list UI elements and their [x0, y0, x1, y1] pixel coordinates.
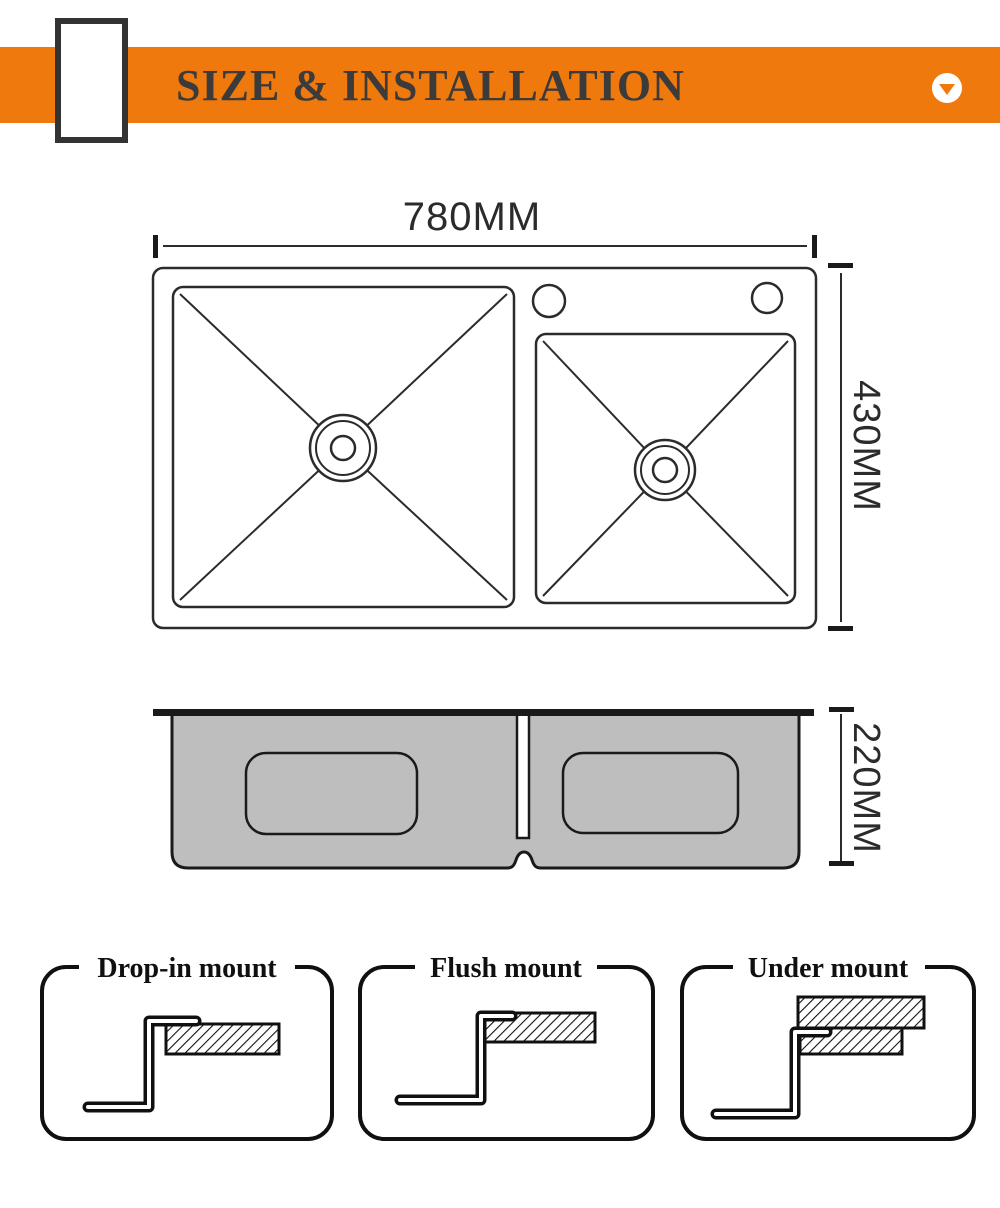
- chevron-down-icon: [939, 84, 955, 95]
- size-installation-diagram: 780MM 430MM: [0, 0, 1000, 1208]
- mount-option-drop-in: Drop-in mount: [42, 953, 332, 1139]
- flush-panel-border: [360, 967, 653, 1139]
- width-dimension: 780MM: [153, 195, 817, 258]
- right-drain-hole: [653, 458, 677, 482]
- flush-mount-label: Flush mount: [430, 953, 582, 984]
- sink-top-view: 780MM 430MM: [153, 195, 887, 631]
- right-bowl: [536, 334, 795, 603]
- depth-dimension: 220MM: [829, 707, 887, 866]
- depth-dimension-tick-bottom: [829, 861, 854, 866]
- product-size-installation-page: SIZE & INSTALLATION 780MM 430MM: [0, 0, 1000, 1208]
- collapse-section-button[interactable]: [932, 73, 962, 103]
- height-dimension-tick-bottom: [828, 626, 853, 631]
- under-mount-label: Under mount: [748, 953, 909, 984]
- mount-option-under: Under mount: [682, 953, 974, 1139]
- width-dimension-tick-left: [153, 235, 158, 258]
- depth-dimension-tick-top: [829, 707, 854, 712]
- section-body: [172, 714, 799, 868]
- section-marker-icon: [55, 18, 128, 143]
- section-title: SIZE & INSTALLATION: [176, 47, 685, 123]
- width-dimension-label: 780MM: [403, 195, 541, 239]
- width-dimension-tick-right: [812, 235, 817, 258]
- mount-options: Drop-in mount Flush mount Under mount: [42, 953, 974, 1139]
- drop-in-mount-label: Drop-in mount: [97, 953, 277, 984]
- sink-section-view: 220MM: [153, 707, 887, 868]
- height-dimension: 430MM: [828, 263, 887, 631]
- left-drain-hole: [331, 436, 355, 460]
- faucet-hole-right: [752, 283, 782, 313]
- drop-in-countertop-hatch: [166, 1024, 279, 1054]
- section-divider-slot: [517, 713, 529, 838]
- section-rim-bar: [153, 709, 814, 716]
- faucet-hole-left: [533, 285, 565, 317]
- height-dimension-tick-top: [828, 263, 853, 268]
- depth-dimension-label: 220MM: [845, 722, 887, 854]
- under-countertop-hatch: [798, 997, 924, 1028]
- mount-option-flush: Flush mount: [360, 953, 653, 1139]
- height-dimension-label: 430MM: [845, 380, 887, 512]
- left-bowl: [173, 287, 514, 607]
